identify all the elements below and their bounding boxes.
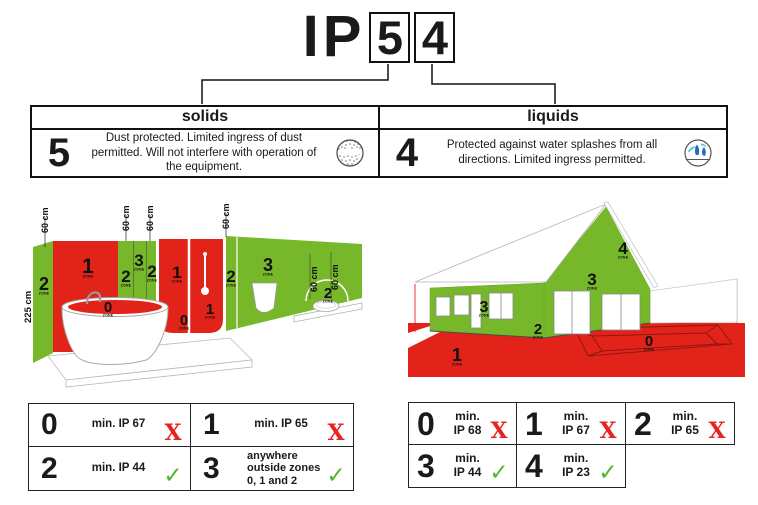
liquids-digit-box: 4 [414,12,455,63]
svg-text:ZONE: ZONE [147,279,158,283]
svg-text:ZONE: ZONE [263,273,274,277]
zone-label: 0ZONE [644,333,655,352]
water-splash-icon [670,135,726,171]
cross-mark-icon: X [160,422,186,446]
svg-text:ZONE: ZONE [83,275,94,279]
svg-text:ZONE: ZONE [39,292,50,296]
svg-text:ZONE: ZONE [205,316,216,320]
solids-description: Dust protected. Limited ingress of dust … [86,131,322,175]
zone-requirement: min. IP 67 [557,410,595,438]
zone-label: 3ZONE [263,255,274,277]
liquids-rating: 4 [380,133,434,173]
liquids-body: 4 Protected against water splashes from … [380,130,726,176]
measure-label: 60 cm [221,203,231,229]
check-mark-icon: ✓ [595,462,621,487]
zone-requirement: min. IP 44 [449,452,486,480]
table-row: 4 min. IP 23 ✓ [517,445,626,488]
zone-requirement: min. IP 67 [77,418,160,431]
svg-text:ZONE: ZONE [644,348,655,352]
measure-label: 60 cm [145,205,155,231]
zone-number: 1 [195,410,239,440]
page-title: IP 5 4 [0,12,758,63]
zone-label: 0ZONE [103,299,114,318]
ip-prefix: IP [303,12,366,62]
liquids-column: liquids 4 Protected against water splash… [380,107,726,176]
bathroom-zones-diagram: 60 cm 60 cm 60 cm 60 cm 60 cm 60 cm 225 … [18,195,370,390]
svg-text:ZONE: ZONE [226,284,237,288]
solids-body: 5 Dust protected. Limited ingress of dus… [32,130,378,176]
zone-label: 2ZONE [147,262,158,283]
svg-text:ZONE: ZONE [179,327,190,331]
svg-text:ZONE: ZONE [618,256,629,260]
house [415,202,737,338]
zone-number: 0 [33,410,77,440]
svg-text:ZONE: ZONE [587,287,598,291]
zone-label: 0ZONE [179,312,190,331]
zone-label: 3ZONE [479,299,490,318]
measure-label: 60 cm [121,205,131,231]
zone-number: 3 [413,450,449,482]
toilet [252,283,277,313]
outdoor-zone-requirements-table: 0 min. IP 68 X 1 min. IP 67 X 2 min. IP … [408,402,735,488]
zone-label: 2ZONE [39,274,50,296]
table-row: 3 anywhere outside zones 0, 1 and 2 ✓ [191,447,354,491]
table-row: 3 min. IP 44 ✓ [408,445,517,488]
solids-rating: 5 [32,133,86,173]
side-wing [650,279,737,323]
svg-text:ZONE: ZONE [452,363,463,367]
zone-requirement: min. IP 65 [239,418,323,431]
zone-requirement: anywhere outside zones 0, 1 and 2 [239,450,323,488]
wall-height-label: 225 cm [23,291,34,323]
measure-label: 60 cm [309,266,319,292]
svg-text:ZONE: ZONE [323,300,334,304]
cross-mark-icon: X [486,420,512,444]
zone-label: 3ZONE [587,270,598,291]
ip54-infographic: IP 5 4 solids 5 Dust protected. Limited … [0,0,758,505]
cross-mark-icon: X [323,422,349,446]
solids-header: solids [32,107,378,130]
zone-label: 2ZONE [323,285,334,304]
zone-number: 0 [413,408,449,440]
ip-rating-table: solids 5 Dust protected. Limited ingress… [30,105,728,178]
zone-number: 2 [33,454,77,484]
zone-number: 4 [521,450,557,482]
solids-digit-box: 5 [369,12,410,63]
zone-requirement: min. IP 23 [557,452,595,480]
liquids-header: liquids [380,107,726,130]
measure-label: 60 cm [40,207,50,233]
dust-circle-icon [322,135,378,171]
table-row: 1 min. IP 67 X [517,402,626,445]
svg-text:ZONE: ZONE [103,314,114,318]
svg-text:ZONE: ZONE [479,314,490,318]
table-row: 2 min. IP 44 ✓ [28,447,191,491]
solids-column: solids 5 Dust protected. Limited ingress… [32,107,380,176]
zone-requirement: min. IP 44 [77,462,160,475]
check-mark-icon: ✓ [486,462,512,487]
zone-label: 1ZONE [205,301,216,320]
zone-label: 2ZONE [121,267,132,288]
svg-text:ZONE: ZONE [134,268,145,272]
zone-label: 4ZONE [618,239,629,260]
zone-label: 2ZONE [533,321,544,340]
zone-label: 3ZONE [134,251,145,272]
svg-text:ZONE: ZONE [121,284,132,288]
zone-label: 2ZONE [226,267,237,288]
bathtub [62,292,168,364]
bathroom-zone-requirements-table: 0 min. IP 67 X 1 min. IP 65 X 2 min. IP … [28,403,354,491]
svg-text:ZONE: ZONE [533,336,544,340]
zone-requirement: min. IP 65 [666,410,704,438]
zone-label: 1ZONE [452,345,463,367]
cross-mark-icon: X [704,420,730,444]
table-row: 0 min. IP 67 X [28,403,191,447]
table-row: 2 min. IP 65 X [626,402,735,445]
liquids-description: Protected against water splashes from al… [434,138,670,167]
zone-number: 1 [521,408,557,440]
cross-mark-icon: X [595,420,621,444]
zone-label: 1ZONE [82,255,94,279]
check-mark-icon: ✓ [160,465,186,490]
zone-number: 2 [630,408,666,440]
table-row: 1 min. IP 65 X [191,403,354,447]
table-row: 0 min. IP 68 X [408,402,517,445]
zone-number: 3 [195,454,239,484]
zone-label: 1ZONE [172,263,183,284]
house-zones-diagram: 4ZONE 3ZONE 3ZONE 2ZONE 1ZONE 0ZONE [400,195,748,390]
check-mark-icon: ✓ [323,465,349,490]
svg-text:ZONE: ZONE [172,280,183,284]
zone-requirement: min. IP 68 [449,410,486,438]
